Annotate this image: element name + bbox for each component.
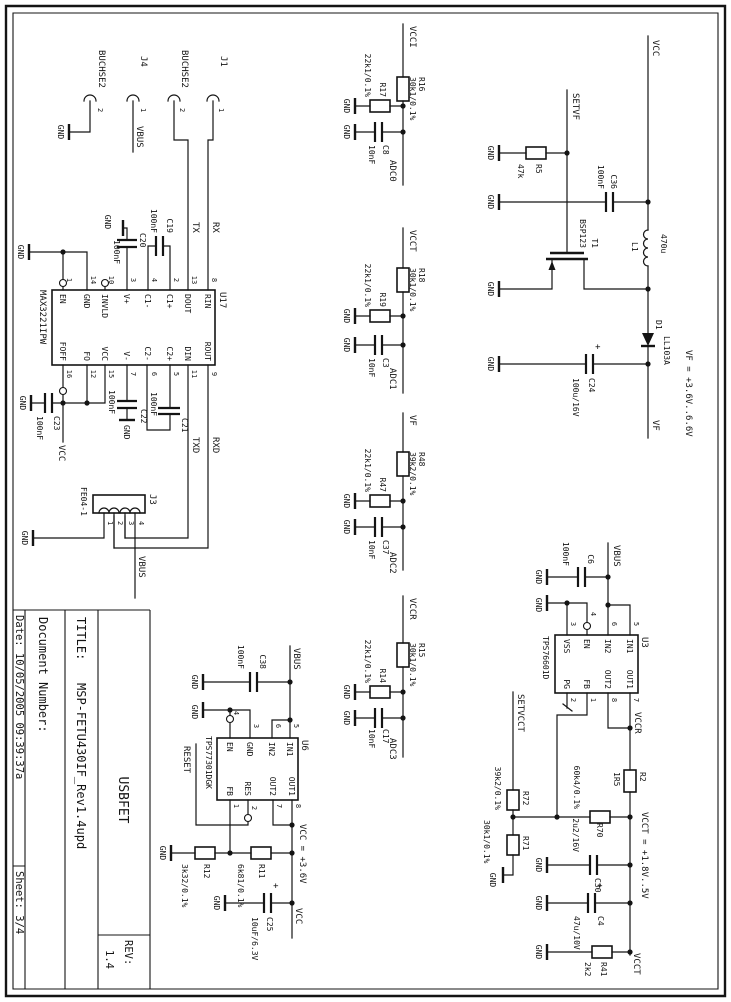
pin-number: 2 — [96, 108, 104, 112]
cap-value: 100nF — [149, 209, 158, 233]
cap-ref: C21 — [180, 418, 189, 433]
cap-value: 10nF — [367, 145, 376, 164]
pin-number: 1 — [217, 108, 225, 112]
pin-number: 4 — [232, 711, 240, 715]
cap-ref: C36 — [609, 175, 618, 190]
vcct-range-note: VCCT = +1.8V..5V — [639, 812, 649, 899]
pin-number: 2 — [116, 521, 124, 525]
adc-divider-1: VCCT R18 30k1/0.1% R19 22k1/0.1% C3 10nF… — [342, 228, 426, 393]
res-ref: R14 — [378, 669, 387, 684]
pin-number: 16 — [65, 370, 73, 378]
net-label: VCCI — [407, 26, 417, 48]
gnd-label: GND — [122, 425, 131, 440]
pin-label: RIN — [203, 294, 212, 309]
pin-number: 1 — [589, 698, 597, 702]
res-ref: R41 — [599, 962, 608, 977]
res-ref: R19 — [378, 293, 387, 308]
pin-label: EN — [58, 294, 67, 304]
pin-label: IN2 — [603, 639, 612, 654]
pin-label: V- — [122, 351, 131, 361]
pin-label: OUT2 — [268, 777, 277, 796]
rev-value: 1.4 — [103, 950, 115, 969]
vf-range-note: VF = +3.6V..6.6V — [683, 350, 693, 437]
pin-number: 4 — [150, 278, 158, 282]
ic-u17: U17 MAX3221IPW 8 13 2 4 3 10 14 1 RIN DO… — [37, 276, 227, 378]
pin-label: VSS — [562, 639, 571, 654]
res-value: 1R5 — [612, 772, 621, 787]
pin-number: 2 — [172, 278, 180, 282]
gnd-label: GND — [158, 846, 167, 861]
pin-number: 2 — [178, 108, 186, 112]
gnd-label: GND — [486, 195, 495, 210]
cap-ref: C38 — [258, 655, 267, 670]
pin-label: IN2 — [267, 742, 276, 757]
cap-value: 10nF — [367, 540, 376, 559]
res-value: 30k1/0.1% — [408, 77, 417, 121]
gnd-label: GND — [103, 215, 112, 230]
ic-value: TPS76601D — [541, 636, 550, 680]
pin-label: DOUT — [183, 294, 192, 313]
polarity-plus: + — [594, 883, 604, 889]
gnd-label: GND — [486, 282, 495, 297]
adc-divider-3: VCCR R15 30k1/0.1% R14 22k1/0.1% C17 10n… — [342, 596, 426, 760]
res-ref: R5 — [534, 164, 543, 174]
pin-label: FO — [82, 351, 91, 361]
cap-ref: C8 — [381, 145, 390, 155]
net-label: VCCR — [407, 598, 417, 620]
res-value: 60k4/0.1% — [572, 766, 581, 810]
pin-number: 7 — [129, 372, 137, 376]
u3-regulator-section: VBUS C6 100nF GND GND U3 TPS76601D 5 6 4… — [482, 542, 649, 977]
pin-number: 2 — [569, 698, 577, 702]
pin-label: GND — [82, 294, 91, 309]
res-value: 22k1/0.1% — [363, 449, 372, 493]
res-ref: R17 — [378, 83, 387, 98]
pin-label: VCC — [100, 347, 109, 362]
res-ref: R12 — [202, 864, 211, 879]
pin-label: C1- — [143, 294, 152, 308]
pin-number: 6 — [150, 372, 158, 376]
res-value: 39k2/0.1% — [493, 767, 502, 811]
res-ref: R72 — [521, 791, 530, 806]
cap-ref: C22 — [139, 409, 148, 424]
net-label-setvcct: SETVCCT — [515, 694, 525, 733]
cap-value: 10nF — [367, 358, 376, 377]
connector-ref: J3 — [147, 494, 157, 505]
schematic-canvas: USBFET REV: 1.4 TITLE: MSP-FETU430IF_Rev… — [0, 0, 731, 1002]
pin-number: 8 — [610, 698, 618, 702]
pin-number: 3 — [252, 724, 260, 728]
net-label-adc3: ADC3 — [387, 738, 397, 760]
pin-number: 1 — [139, 108, 147, 112]
vcc-value-note: VCC = +3.6V — [297, 824, 307, 884]
input-connectors: J1 1 RX BUCHSE2 2 TX J4 1 VBUS BUCHSE2 2… — [56, 50, 228, 290]
pin-label: PG — [562, 679, 571, 689]
net-label-adc0: ADC0 — [387, 160, 397, 182]
pin-label: GND — [245, 742, 254, 757]
res-ref: R18 — [417, 268, 426, 283]
res-ref: R2 — [638, 772, 647, 782]
adc-divider-2: VF R48 39k2/0.1% R47 22k1/0.1% C37 10nF … — [342, 413, 426, 574]
cap-ref: C24 — [587, 378, 596, 393]
ic-ref: U17 — [217, 292, 227, 308]
res-value: 30k1/0.1% — [482, 820, 491, 864]
connector-ref-buchse-tx: BUCHSE2 — [179, 50, 189, 88]
adc-divider-0: VCCI R16 30k1/0.1% R17 22k1/0.1% C8 10nF… — [342, 24, 426, 185]
pin-number: 1 — [232, 804, 240, 808]
net-label-adc1: ADC1 — [387, 368, 397, 390]
net-label-adc2: ADC2 — [387, 552, 397, 574]
gnd-label: GND — [534, 598, 543, 613]
pin-number: 5 — [172, 372, 180, 376]
gnd-label: GND — [20, 531, 29, 546]
res-ref: R11 — [257, 864, 266, 879]
pin-number: 2 — [250, 806, 258, 810]
gnd-label: GND — [488, 873, 497, 888]
connector-ref-buchse-gnd: BUCHSE2 — [96, 50, 106, 88]
net-label-vbus: VBUS — [134, 126, 144, 148]
net-label-vbus: VBUS — [291, 648, 301, 670]
doc-number-label: Document Number: — [36, 617, 50, 733]
pin-label: C2- — [143, 347, 152, 361]
gnd-label: GND — [486, 357, 495, 372]
net-label-vf: VF — [650, 420, 660, 431]
pin-label: FB — [582, 679, 591, 689]
diode-ref: D1 — [654, 320, 663, 330]
cap-value: 100nF — [596, 165, 605, 189]
ic-ref: U3 — [639, 637, 649, 648]
gnd-label: GND — [342, 338, 351, 353]
gnd-label: GND — [342, 685, 351, 700]
connector-ref-j4: J4 — [138, 56, 148, 67]
ic-value: TPS77301DGK — [204, 736, 213, 789]
net-label: VCCT — [407, 230, 417, 252]
inductor-value: 470u — [659, 234, 668, 253]
cap-value: 100nF — [35, 416, 44, 440]
gnd-label: GND — [56, 125, 65, 140]
pin-label: IN1 — [285, 742, 294, 757]
net-label-rxd: RXD — [210, 437, 220, 453]
pin-number: 6 — [274, 724, 282, 728]
gnd-label: GND — [342, 711, 351, 726]
title-block: USBFET REV: 1.4 TITLE: MSP-FETU430IF_Rev… — [13, 610, 150, 989]
res-ref: R15 — [417, 643, 426, 658]
res-value: 30k1/0.1% — [408, 268, 417, 312]
gnd-label: GND — [342, 99, 351, 114]
net-label-vbus: VBUS — [611, 545, 621, 567]
res-value: 6k81/0.1% — [236, 864, 245, 908]
gnd-label: GND — [486, 146, 495, 161]
pin-label: INVLD — [100, 294, 109, 318]
pin-label: OUT2 — [603, 670, 612, 689]
gnd-label: GND — [534, 896, 543, 911]
pin-number: 13 — [190, 276, 198, 284]
cap-value: 100u/16V — [571, 378, 580, 417]
cap-ref: C23 — [52, 416, 61, 431]
pin-label: C1+ — [165, 294, 174, 309]
connector-value: FE04-1 — [79, 487, 88, 516]
pin-number: 1 — [106, 521, 114, 525]
pin-number: 6 — [610, 622, 618, 626]
net-label-vcc: VCC — [650, 40, 660, 56]
res-ref: R47 — [378, 478, 387, 493]
pin-label: EN — [225, 742, 234, 752]
u17-nets: C19 100nF C20 100nF GND GND RXD TXD C21 … — [16, 209, 220, 548]
sheet-text: Sheet: 3/4 — [13, 871, 25, 934]
res-value: 22k1/0.1% — [363, 264, 372, 308]
cap-value: 10nF — [367, 729, 376, 748]
res-value: 2k2 — [583, 962, 592, 977]
pin-number: 9 — [210, 372, 218, 376]
pin-label: OUT1 — [625, 670, 634, 689]
pin-number: 14 — [89, 276, 97, 284]
date-text: Date: 10/05/2005 09:39:37a — [13, 615, 25, 779]
net-label-txd: TXD — [190, 437, 200, 453]
gnd-label: GND — [190, 705, 199, 720]
schematic-sheet: USBFET REV: 1.4 TITLE: MSP-FETU430IF_Rev… — [0, 0, 731, 1002]
cap-value: 100nF — [149, 392, 158, 416]
net-label: VF — [407, 415, 417, 426]
res-ref: R16 — [417, 77, 426, 92]
cap-value: 10uF/6.3V — [250, 917, 259, 961]
transistor-ref: T1 — [590, 238, 599, 248]
diode-value: LL103A — [662, 336, 671, 365]
res-value: 22k1/0.1% — [363, 54, 372, 98]
cap-ref: C19 — [165, 219, 174, 234]
pin-number: 5 — [292, 724, 300, 728]
u6-regulator-section: VBUS C38 100nF GND GND U6 TPS77301DGK 5 … — [158, 645, 309, 961]
gnd-label: GND — [342, 309, 351, 324]
ic-ref: U6 — [299, 740, 309, 751]
polarity-plus: + — [592, 344, 602, 350]
res-ref: R48 — [417, 452, 426, 467]
pin-label: V+ — [122, 294, 131, 304]
cap-ref: C25 — [265, 917, 274, 932]
polarity-plus: + — [270, 883, 280, 889]
pin-number: 5 — [632, 622, 640, 626]
cap-ref: C4 — [596, 916, 605, 926]
doc-name: USBFET — [115, 777, 130, 824]
gnd-label: GND — [534, 945, 543, 960]
net-label-vcc: VCC — [293, 908, 303, 924]
pin-label: RES — [243, 782, 252, 797]
gnd-label: GND — [534, 858, 543, 873]
gnd-label: GND — [342, 125, 351, 140]
res-value: 47k — [516, 164, 525, 179]
gnd-label: GND — [212, 896, 221, 911]
cap-value: 100nF — [236, 645, 245, 669]
cap-value: 47u/10V — [572, 916, 581, 950]
pin-number: 3 — [569, 622, 577, 626]
pin-label: IN1 — [625, 639, 634, 654]
pin-number: 8 — [210, 278, 218, 282]
pin-number: 7 — [275, 804, 283, 808]
pin-number: 15 — [107, 370, 115, 378]
cap-ref: C6 — [586, 554, 595, 564]
pin-number: 8 — [294, 804, 302, 808]
transistor-value: BSP123 — [578, 219, 587, 248]
pin-number: 12 — [89, 370, 97, 378]
title-text: MSP-FETU430IF_Rev1.4upd — [74, 683, 88, 849]
ic-value: MAX3221IPW — [37, 290, 47, 345]
cap-value: 100nF — [112, 240, 121, 264]
connector-ref-j1: J1 — [218, 56, 228, 67]
cap-value: 100nF — [561, 542, 570, 566]
res-ref: R70 — [595, 823, 604, 838]
pin-label: DIN — [183, 347, 192, 362]
pin-number: 4 — [137, 521, 145, 525]
pin-number: 7 — [632, 698, 640, 702]
gnd-label: GND — [342, 494, 351, 509]
gnd-label: GND — [18, 396, 27, 411]
pin-label: FB — [225, 786, 234, 796]
pin-label: EN — [582, 639, 591, 649]
net-label-tx: TX — [190, 222, 200, 233]
res-ref: R71 — [521, 836, 530, 851]
net-label-vccr: VCCR — [632, 712, 642, 734]
pin-label: ROUT — [203, 342, 212, 361]
res-value: 3k32/0.1% — [180, 864, 189, 908]
res-value: 22k1/0.1% — [363, 640, 372, 684]
title-label: TITLE: — [74, 617, 88, 660]
cap-value: 100nF — [107, 390, 116, 414]
cap-ref: C20 — [138, 233, 147, 248]
net-label-vbus: VBUS — [136, 556, 146, 578]
gnd-label: GND — [534, 570, 543, 585]
pin-label: C2+ — [165, 347, 174, 362]
net-label-vcc: VCC — [56, 445, 66, 461]
cap-ref: C3 — [381, 358, 390, 368]
pin-number: 11 — [190, 370, 198, 378]
connector-j3: J3 FE04-1 GND 4 3 2 1 VBUS — [20, 487, 157, 598]
res-value: 39k2/0.1% — [408, 452, 417, 496]
pin-label: OUT1 — [287, 777, 296, 796]
cap-value: 2u2/16V — [571, 818, 580, 852]
net-label-vcct: VCCT — [631, 953, 641, 975]
gnd-label: GND — [342, 520, 351, 535]
rev-label: REV: — [122, 940, 134, 965]
inductor-ref: L1 — [630, 242, 639, 252]
vf-boost-section: VCC 470u L1 D1 LL103A C36 100nF SETVF R5… — [486, 36, 693, 438]
pin-label: FOFF — [58, 342, 67, 361]
net-label-rx: RX — [210, 222, 220, 233]
pin-number: 3 — [127, 521, 135, 525]
net-label-reset: RESET — [181, 746, 191, 774]
pin-number: 4 — [589, 612, 597, 616]
gnd-label: GND — [16, 245, 25, 260]
pin-number: 3 — [129, 278, 137, 282]
net-label-setvf: SETVF — [570, 93, 580, 120]
gnd-label: GND — [190, 675, 199, 690]
res-value: 30k1/0.1% — [408, 643, 417, 687]
